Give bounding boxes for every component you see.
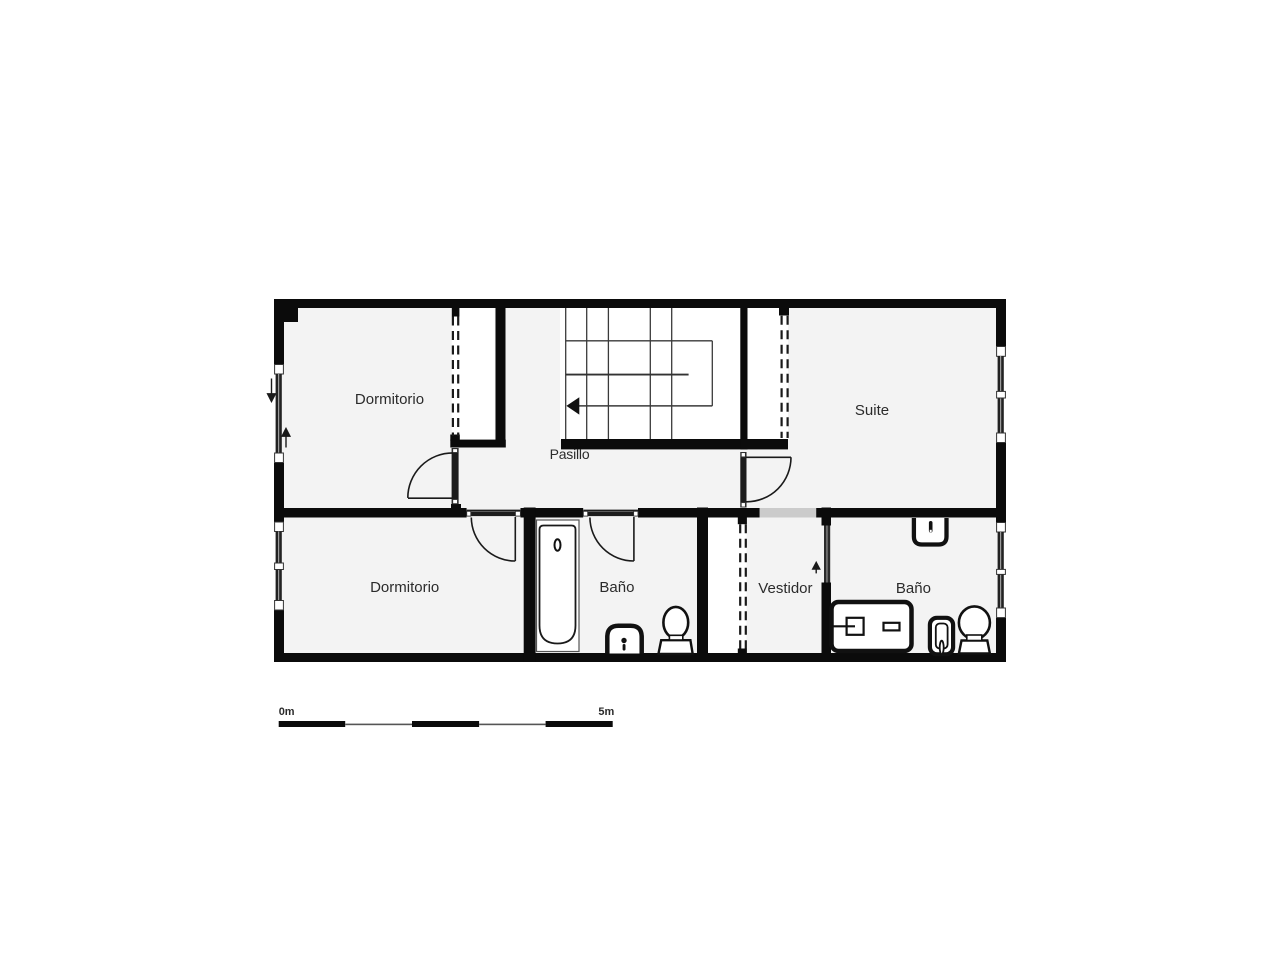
svg-text:5m: 5m [598, 706, 614, 718]
svg-text:Vestidor: Vestidor [758, 580, 812, 597]
svg-text:Baño: Baño [896, 580, 931, 597]
svg-text:Dormitorio: Dormitorio [370, 579, 439, 596]
svg-text:Baño: Baño [599, 579, 634, 596]
svg-text:Pasillo: Pasillo [550, 446, 590, 462]
svg-text:0m: 0m [279, 706, 295, 718]
svg-text:Dormitorio: Dormitorio [355, 391, 424, 408]
svg-text:Suite: Suite [855, 402, 889, 419]
